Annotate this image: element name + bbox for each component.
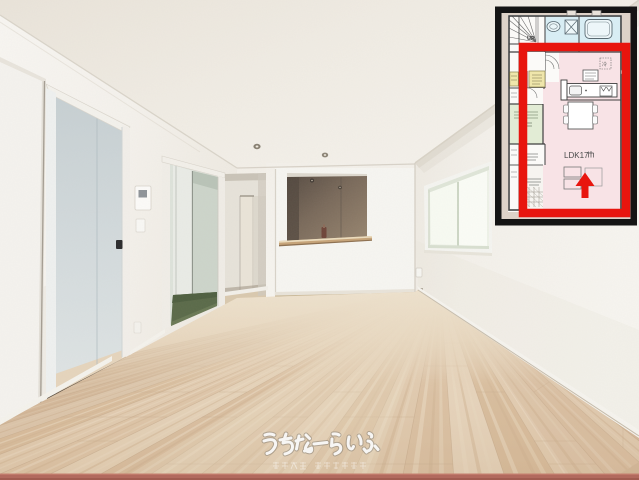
svg-text:UP: UP: [527, 36, 535, 42]
svg-text:LDK17: LDK17: [564, 151, 589, 160]
svg-text:冷: 冷: [602, 61, 607, 68]
